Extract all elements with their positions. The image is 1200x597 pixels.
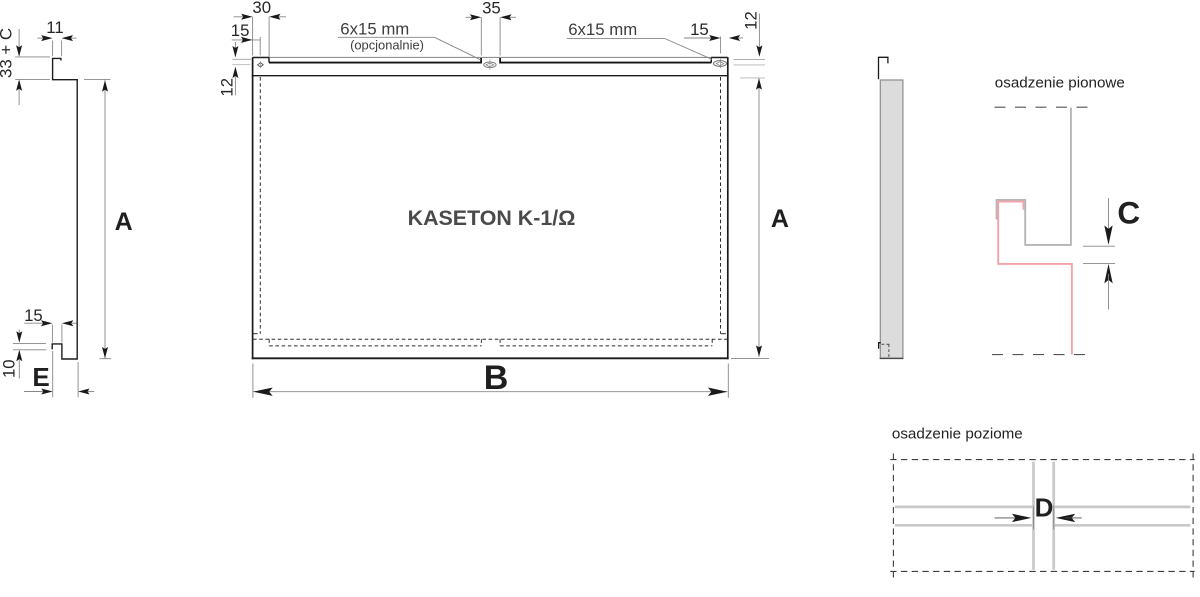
svg-text:11: 11 (46, 18, 63, 37)
svg-text:33 + C: 33 + C (0, 28, 16, 78)
svg-text:D: D (1035, 492, 1054, 522)
svg-text:15: 15 (690, 20, 709, 39)
svg-text:A: A (115, 208, 133, 236)
svg-text:35: 35 (482, 0, 501, 17)
svg-text:12: 12 (218, 78, 237, 97)
svg-text:15: 15 (231, 21, 250, 40)
svg-text:15: 15 (24, 306, 43, 325)
svg-text:osadzenie pionowe: osadzenie pionowe (995, 75, 1125, 92)
svg-text:osadzenie poziome: osadzenie poziome (892, 426, 1023, 443)
svg-text:(opcjonalnie): (opcjonalnie) (350, 37, 424, 52)
svg-text:12: 12 (742, 11, 761, 30)
svg-text:6x15 mm: 6x15 mm (340, 20, 409, 39)
svg-text:KASETON K-1/Ω: KASETON K-1/Ω (408, 206, 576, 230)
svg-text:C: C (1117, 194, 1140, 230)
svg-text:E: E (32, 362, 49, 392)
svg-text:A: A (771, 205, 789, 233)
svg-text:30: 30 (252, 0, 271, 17)
svg-text:B: B (484, 359, 509, 397)
svg-text:10: 10 (0, 359, 18, 378)
svg-text:6x15 mm: 6x15 mm (568, 20, 637, 39)
